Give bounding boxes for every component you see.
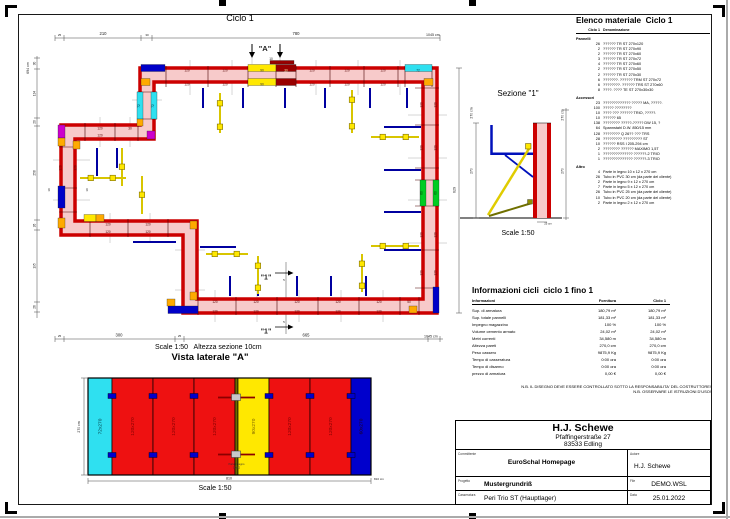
progetto-label: Progetto — [458, 479, 470, 483]
wall-core — [537, 123, 547, 218]
autore-label: Autore — [630, 452, 639, 456]
dim-label: 810 — [226, 477, 232, 481]
dim-label: 120 — [212, 309, 218, 313]
material-item-name: ????. ???? TE ST 270x30x30 — [603, 88, 710, 93]
info-row-value: 0:00 ora — [616, 363, 666, 370]
sezione-dim-lines — [473, 108, 569, 222]
info-col-fornitura: Fornitura — [564, 298, 616, 303]
dim-label: 120 — [420, 145, 424, 151]
dim-label: 120 — [376, 300, 382, 304]
info-row-label: Peso cassero — [472, 349, 564, 356]
info-row: Sup. totale pannelli181,33 m²181,33 m² — [472, 314, 670, 321]
casseratura-value: Peri Trio ST (Hauptlager) — [484, 495, 556, 502]
info-table-header: Informazioni Fornitura Ciclo 1 — [472, 298, 670, 305]
material-group-name: Pannelli — [576, 37, 710, 41]
dim-label: 90 — [260, 82, 264, 86]
dim-label: 120 — [420, 270, 424, 276]
dim-label: 120 — [380, 82, 386, 86]
dim-label: 20 — [33, 120, 37, 124]
info-col-label: Informazioni — [472, 298, 564, 303]
info-row-value: 0:00 ora — [616, 356, 666, 363]
cycle-info-table: Informazioni cicli ciclo 1 fino 1 Inform… — [472, 286, 670, 377]
info-row-value: 24,02 m³ — [616, 328, 666, 335]
dim-label: 26 — [33, 305, 37, 309]
info-row-label: Sup. di armatura — [472, 307, 564, 314]
info-row: Sup. di armatura180,79 m²180,79 m² — [472, 307, 670, 314]
dim-label: 10 — [47, 188, 51, 192]
dim-label: 30 — [33, 62, 37, 66]
dim-label: 10 — [85, 188, 89, 192]
vista-panel-label: 120x270 — [171, 417, 177, 436]
material-item-name: Parte in legno 2 x 12 x 270 cm — [603, 201, 710, 206]
dim-label: 120 — [74, 165, 78, 171]
dim-label: 25 — [58, 334, 62, 338]
info-row: Altezza pareti270,0 cm270,0 cm — [472, 342, 670, 349]
info-row-label: Altezza pareti — [472, 342, 564, 349]
wall-face-left — [533, 123, 537, 218]
dim-label: 72 — [416, 68, 420, 72]
dim-label: 72 — [151, 104, 155, 108]
info-table-title: Informazioni cicli ciclo 1 fino 1 — [472, 286, 670, 295]
notes: N.B. IL DISEGNO DEVE ESSERE CONTROLLATO … — [415, 384, 711, 394]
file-cell: File DEMO.WSL — [628, 477, 710, 491]
material-list: Elenco materiale Ciclo 1 Ciclo 1 Denomin… — [576, 16, 710, 206]
info-row-label: Tempo di disarmo — [472, 363, 564, 370]
material-list-groups: Pannelli26?????? TR ST 270x1202?????? TR… — [576, 37, 710, 206]
dim-label: 120 — [97, 126, 103, 130]
vista-drawing: 72x270120x270120x270120x27090x270120x270… — [77, 378, 384, 484]
dim-label: 25 cm — [544, 222, 552, 226]
info-row-value: 100 % — [564, 321, 616, 328]
autore-cell: Autore H.J. Schewe — [628, 450, 710, 477]
dim-label: 780 — [293, 31, 301, 36]
dim-label: 665 — [303, 333, 311, 338]
dim-label: 120 — [212, 300, 218, 304]
dim-label: 120 — [434, 232, 438, 238]
dim-label: 120 — [309, 68, 315, 72]
committente-cell: Committente EuroSchal Homepage — [456, 450, 628, 477]
vista-panel-label: 120x270 — [212, 417, 218, 436]
dim-label: "A" — [259, 44, 272, 53]
info-row-value: 180,79 m² — [564, 307, 616, 314]
material-list-header: Ciclo 1 Denominazione — [576, 28, 710, 34]
dim-label: 629 — [453, 187, 457, 193]
wall-inner-face — [75, 82, 423, 299]
info-row: Impegno magazzino100 %100 % — [472, 321, 670, 328]
dim-label: 120 — [145, 222, 151, 226]
dim-label: "1" — [261, 275, 272, 282]
dim-label: 120 — [434, 145, 438, 151]
dim-label: 270 — [561, 168, 565, 174]
dim-label: 26 — [33, 224, 37, 228]
info-row-value: 24,02 m³ — [564, 328, 616, 335]
committente-label: Committente — [458, 452, 476, 456]
dim-label: 120 — [59, 165, 63, 171]
vista-panel-label: 72x270 — [98, 418, 104, 434]
info-row-value: 34,580 m — [564, 335, 616, 342]
dim-label: "1" — [261, 329, 272, 336]
progetto-cell: Progetto Mustergrundriß — [456, 477, 628, 491]
drawing-sheet: 25210307801045 cm694 cm30134202582619526… — [0, 0, 730, 519]
dim-label: 120 — [344, 68, 350, 72]
dim-label: 258 — [33, 170, 37, 176]
material-item-row: 8????. ???? TE ST 270x30x30 — [576, 88, 710, 93]
info-row: prezzo di armatura0,00 €0,00 € — [472, 370, 670, 377]
dim-label: 30 — [145, 33, 149, 37]
material-list-title: Elenco materiale Ciclo 1 — [576, 16, 710, 25]
vista-panel-label: 60x270 — [359, 418, 365, 434]
vista-scale: Scale 1:50 — [125, 485, 305, 492]
material-group-name: Altro — [576, 165, 710, 169]
dim-label: 120 — [105, 222, 111, 226]
dim-label: 120 — [420, 232, 424, 238]
casseratura-label: Casseratura — [458, 493, 475, 497]
material-item-name: ?????????????? ??????-3 TRIO — [603, 157, 710, 162]
info-row-value: 0,00 € — [616, 370, 666, 377]
vista-panel — [235, 378, 238, 475]
info-row: Metri correnti34,580 m34,580 m — [472, 335, 670, 342]
info-row-label: Volume cemento armato — [472, 328, 564, 335]
material-item-row: 2Parte in legno 2 x 12 x 270 cm — [576, 201, 710, 206]
info-row: Peso cassero9875,9 Kg9875,9 Kg — [472, 349, 670, 356]
material-group-name: Accessori — [576, 96, 710, 100]
dim-label: 270 cm — [470, 107, 474, 118]
dim-label: 300 — [116, 333, 124, 338]
info-row-value: 0,00 € — [564, 370, 616, 377]
dim-label: 10x12 — [233, 466, 241, 470]
vista-title: Vista laterale "A" — [105, 352, 315, 363]
info-row-label: Metri correnti — [472, 335, 564, 342]
panel-joints — [59, 66, 439, 315]
company-city: 83533 Edling — [456, 441, 710, 448]
dim-label: 60 — [420, 191, 424, 195]
material-item-row: 1?????????????? ??????-3 TRIO — [576, 157, 710, 162]
dim-label: 120 — [97, 133, 103, 137]
dim-label: 1045 cm — [426, 33, 440, 37]
committente-value: EuroSchal Homepage — [456, 459, 627, 466]
dim-label: 120 — [294, 300, 300, 304]
dim-label: 210 — [100, 31, 108, 36]
plan-drawing: 25210307801045 cm694 cm30134202582619526… — [26, 31, 462, 342]
dim-label: 120 — [344, 82, 350, 86]
special-panels — [58, 61, 439, 314]
vista-panels: 72x270120x270120x270120x27090x270120x270… — [88, 378, 371, 475]
sezione-title: Sezione "1" — [462, 89, 574, 98]
plan-title: Ciclo 1 — [170, 13, 310, 23]
dim-label: 60 — [434, 191, 438, 195]
company-street: Pfaffingerstraße 27 — [456, 434, 710, 441]
title-block-company-row: H.J. Schewe Pfaffingerstraße 27 83533 Ed… — [456, 421, 710, 450]
plan-scale-note: Scale 1:50 Altezza sezione 10cm — [155, 344, 262, 351]
info-row: Volume cemento armato24,02 m³24,02 m³ — [472, 328, 670, 335]
company-name: H.J. Schewe — [456, 421, 710, 434]
dim-label: 120 — [222, 82, 228, 86]
data-value: 25.01.2022 — [628, 495, 710, 502]
note-line-2: N.B. OSSERVARE LE ISTRUZIONI D'USO! — [415, 389, 711, 394]
dim-label: 120 — [145, 230, 151, 234]
dim-label: 50 — [407, 300, 411, 304]
dim-label: 5 — [283, 278, 285, 282]
info-row-value: 0:00 ora — [564, 363, 616, 370]
dim-label: 25 — [58, 33, 62, 37]
dim-label: 120 — [420, 102, 424, 108]
data-cell: Data 25.01.2022 — [628, 491, 710, 505]
dim-label: 72 — [137, 104, 141, 108]
dim-label: 810 cm — [374, 477, 384, 481]
dim-label: 694 cm — [26, 62, 30, 74]
info-row-value: 181,33 m² — [564, 314, 616, 321]
info-row-label: Tempo di casseratura — [472, 356, 564, 363]
dim-label: 10 — [269, 57, 273, 61]
info-row-label: prezzo di armatura — [472, 370, 564, 377]
dim-label: 120 — [184, 82, 190, 86]
dim-label: Parte in legno — [228, 462, 245, 466]
vista-panel-label: 120x270 — [328, 417, 334, 436]
material-col-qty: Ciclo 1 — [576, 28, 600, 32]
wall-face-right — [547, 123, 551, 218]
material-item-qty: 8 — [576, 88, 600, 93]
info-row: Tempo di disarmo0:00 ora0:00 ora — [472, 363, 670, 370]
dim-label: 120 — [184, 68, 190, 72]
info-row-label: Impegno magazzino — [472, 321, 564, 328]
info-row-label: Sup. totale pannelli — [472, 314, 564, 321]
plan-ref-lines — [53, 58, 447, 322]
dim-label: 120 — [253, 309, 259, 313]
props — [80, 90, 419, 294]
info-col-ciclo: Ciclo 1 — [616, 298, 666, 303]
dim-label: 270 cm — [77, 421, 81, 432]
info-row-value: 0:00 ora — [564, 356, 616, 363]
dim-label: 120 — [380, 68, 386, 72]
dim-label: 120 — [434, 102, 438, 108]
dim-label: 120 — [105, 230, 111, 234]
sezione-drawing: 270 cm270270 cm27025 cm — [460, 107, 569, 225]
dim-label: 134 — [33, 91, 37, 97]
sezione-scale: Scale 1:50 — [468, 230, 568, 237]
info-row-value: 180,79 m² — [616, 307, 666, 314]
file-value: DEMO.WSL — [628, 481, 710, 488]
dim-label: 25 — [178, 334, 182, 338]
dim-label: 270 cm — [561, 109, 565, 120]
dim-label: 30 — [284, 68, 288, 72]
dim-label: 120 — [253, 300, 259, 304]
dim-label: 270 — [470, 168, 474, 174]
info-row-value: 181,33 m² — [616, 314, 666, 321]
dim-label: 1045 cm — [424, 335, 438, 339]
info-row-value: 9875,9 Kg — [616, 349, 666, 356]
info-row-value: 9875,9 Kg — [564, 349, 616, 356]
dim-label: 120 — [222, 68, 228, 72]
info-row-value: 270,0 cm — [616, 342, 666, 349]
progetto-value: Mustergrundriß — [484, 481, 532, 488]
dim-label: 90 — [260, 68, 264, 72]
info-row: Tempo di casseratura0:00 ora0:00 ora — [472, 356, 670, 363]
info-row-value: 34,580 m — [616, 335, 666, 342]
vista-panel-label: 90x270 — [251, 418, 257, 434]
wall-band — [61, 68, 437, 313]
info-row-value: 270,0 cm — [564, 342, 616, 349]
info-row-value: 100 % — [616, 321, 666, 328]
dim-label: 120 — [434, 270, 438, 276]
casseratura-cell: Casseratura Peri Trio ST (Hauptlager) — [456, 491, 628, 505]
dim-label: 120 — [335, 300, 341, 304]
dim-label: 195 — [33, 263, 37, 269]
material-item-qty: 1 — [576, 157, 600, 162]
dim-label: 5 — [283, 320, 285, 324]
vista-panel-label: 120x270 — [287, 417, 293, 436]
dim-label: 120 — [376, 309, 382, 313]
info-table-rows: Sup. di armatura180,79 m²180,79 m²Sup. t… — [472, 307, 670, 378]
dim-label: 120 — [294, 309, 300, 313]
wall-outer-face — [61, 68, 437, 313]
material-col-name: Denominazione — [603, 28, 710, 32]
vista-panel-label: 120x270 — [130, 417, 136, 436]
autore-value: H.J. Schewe — [634, 463, 671, 470]
dim-label: 120 — [335, 309, 341, 313]
dim-label: 30 — [128, 126, 132, 130]
title-block: H.J. Schewe Pfaffingerstraße 27 83533 Ed… — [455, 420, 711, 505]
dim-label: 120 — [309, 82, 315, 86]
material-item-qty: 2 — [576, 201, 600, 206]
